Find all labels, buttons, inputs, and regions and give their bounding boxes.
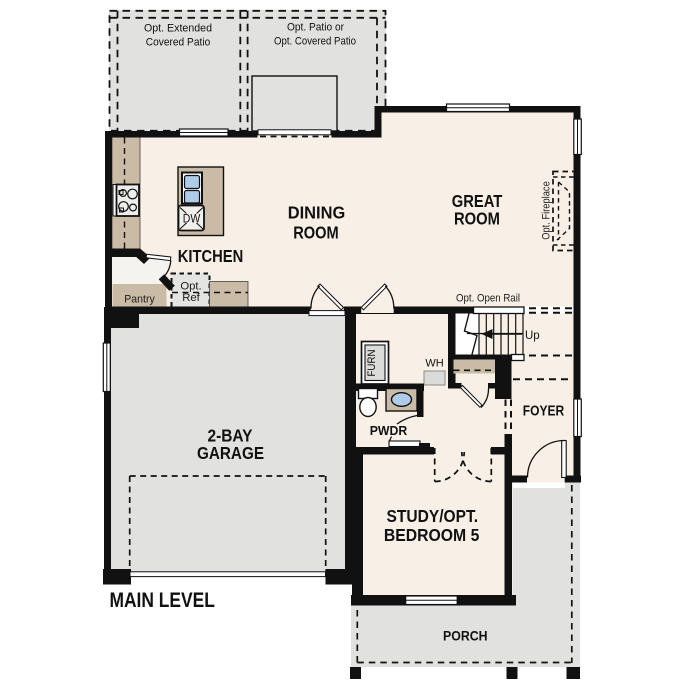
svg-text:ROOM: ROOM [293,223,339,243]
svg-text:Covered Patio: Covered Patio [146,37,211,49]
svg-text:FOYER: FOYER [523,404,565,420]
svg-text:PORCH: PORCH [443,628,488,643]
svg-text:DINING: DINING [288,203,346,223]
svg-text:Ref: Ref [182,292,200,304]
svg-text:Opt. Open Rail: Opt. Open Rail [456,293,520,305]
svg-text:Opt. Fireplace: Opt. Fireplace [541,181,553,240]
svg-text:GARAGE: GARAGE [197,443,264,463]
svg-text:Up: Up [525,330,540,342]
svg-text:FURN: FURN [366,349,378,376]
svg-text:Pantry: Pantry [124,294,155,306]
svg-text:Opt.: Opt. [180,281,201,293]
svg-text:DW: DW [183,212,201,226]
svg-text:Opt. Extended: Opt. Extended [144,23,212,35]
svg-text:Opt. Patio or: Opt. Patio or [287,22,344,34]
svg-text:STUDY/OPT.: STUDY/OPT. [387,506,479,526]
svg-text:MAIN LEVEL: MAIN LEVEL [109,588,215,612]
svg-text:KITCHEN: KITCHEN [178,246,244,266]
svg-text:WH: WH [425,358,443,370]
svg-text:Opt. Covered Patio: Opt. Covered Patio [274,36,356,48]
svg-text:BEDROOM 5: BEDROOM 5 [384,525,480,545]
svg-text:PWDR: PWDR [370,423,408,438]
svg-text:ROOM: ROOM [454,209,500,229]
